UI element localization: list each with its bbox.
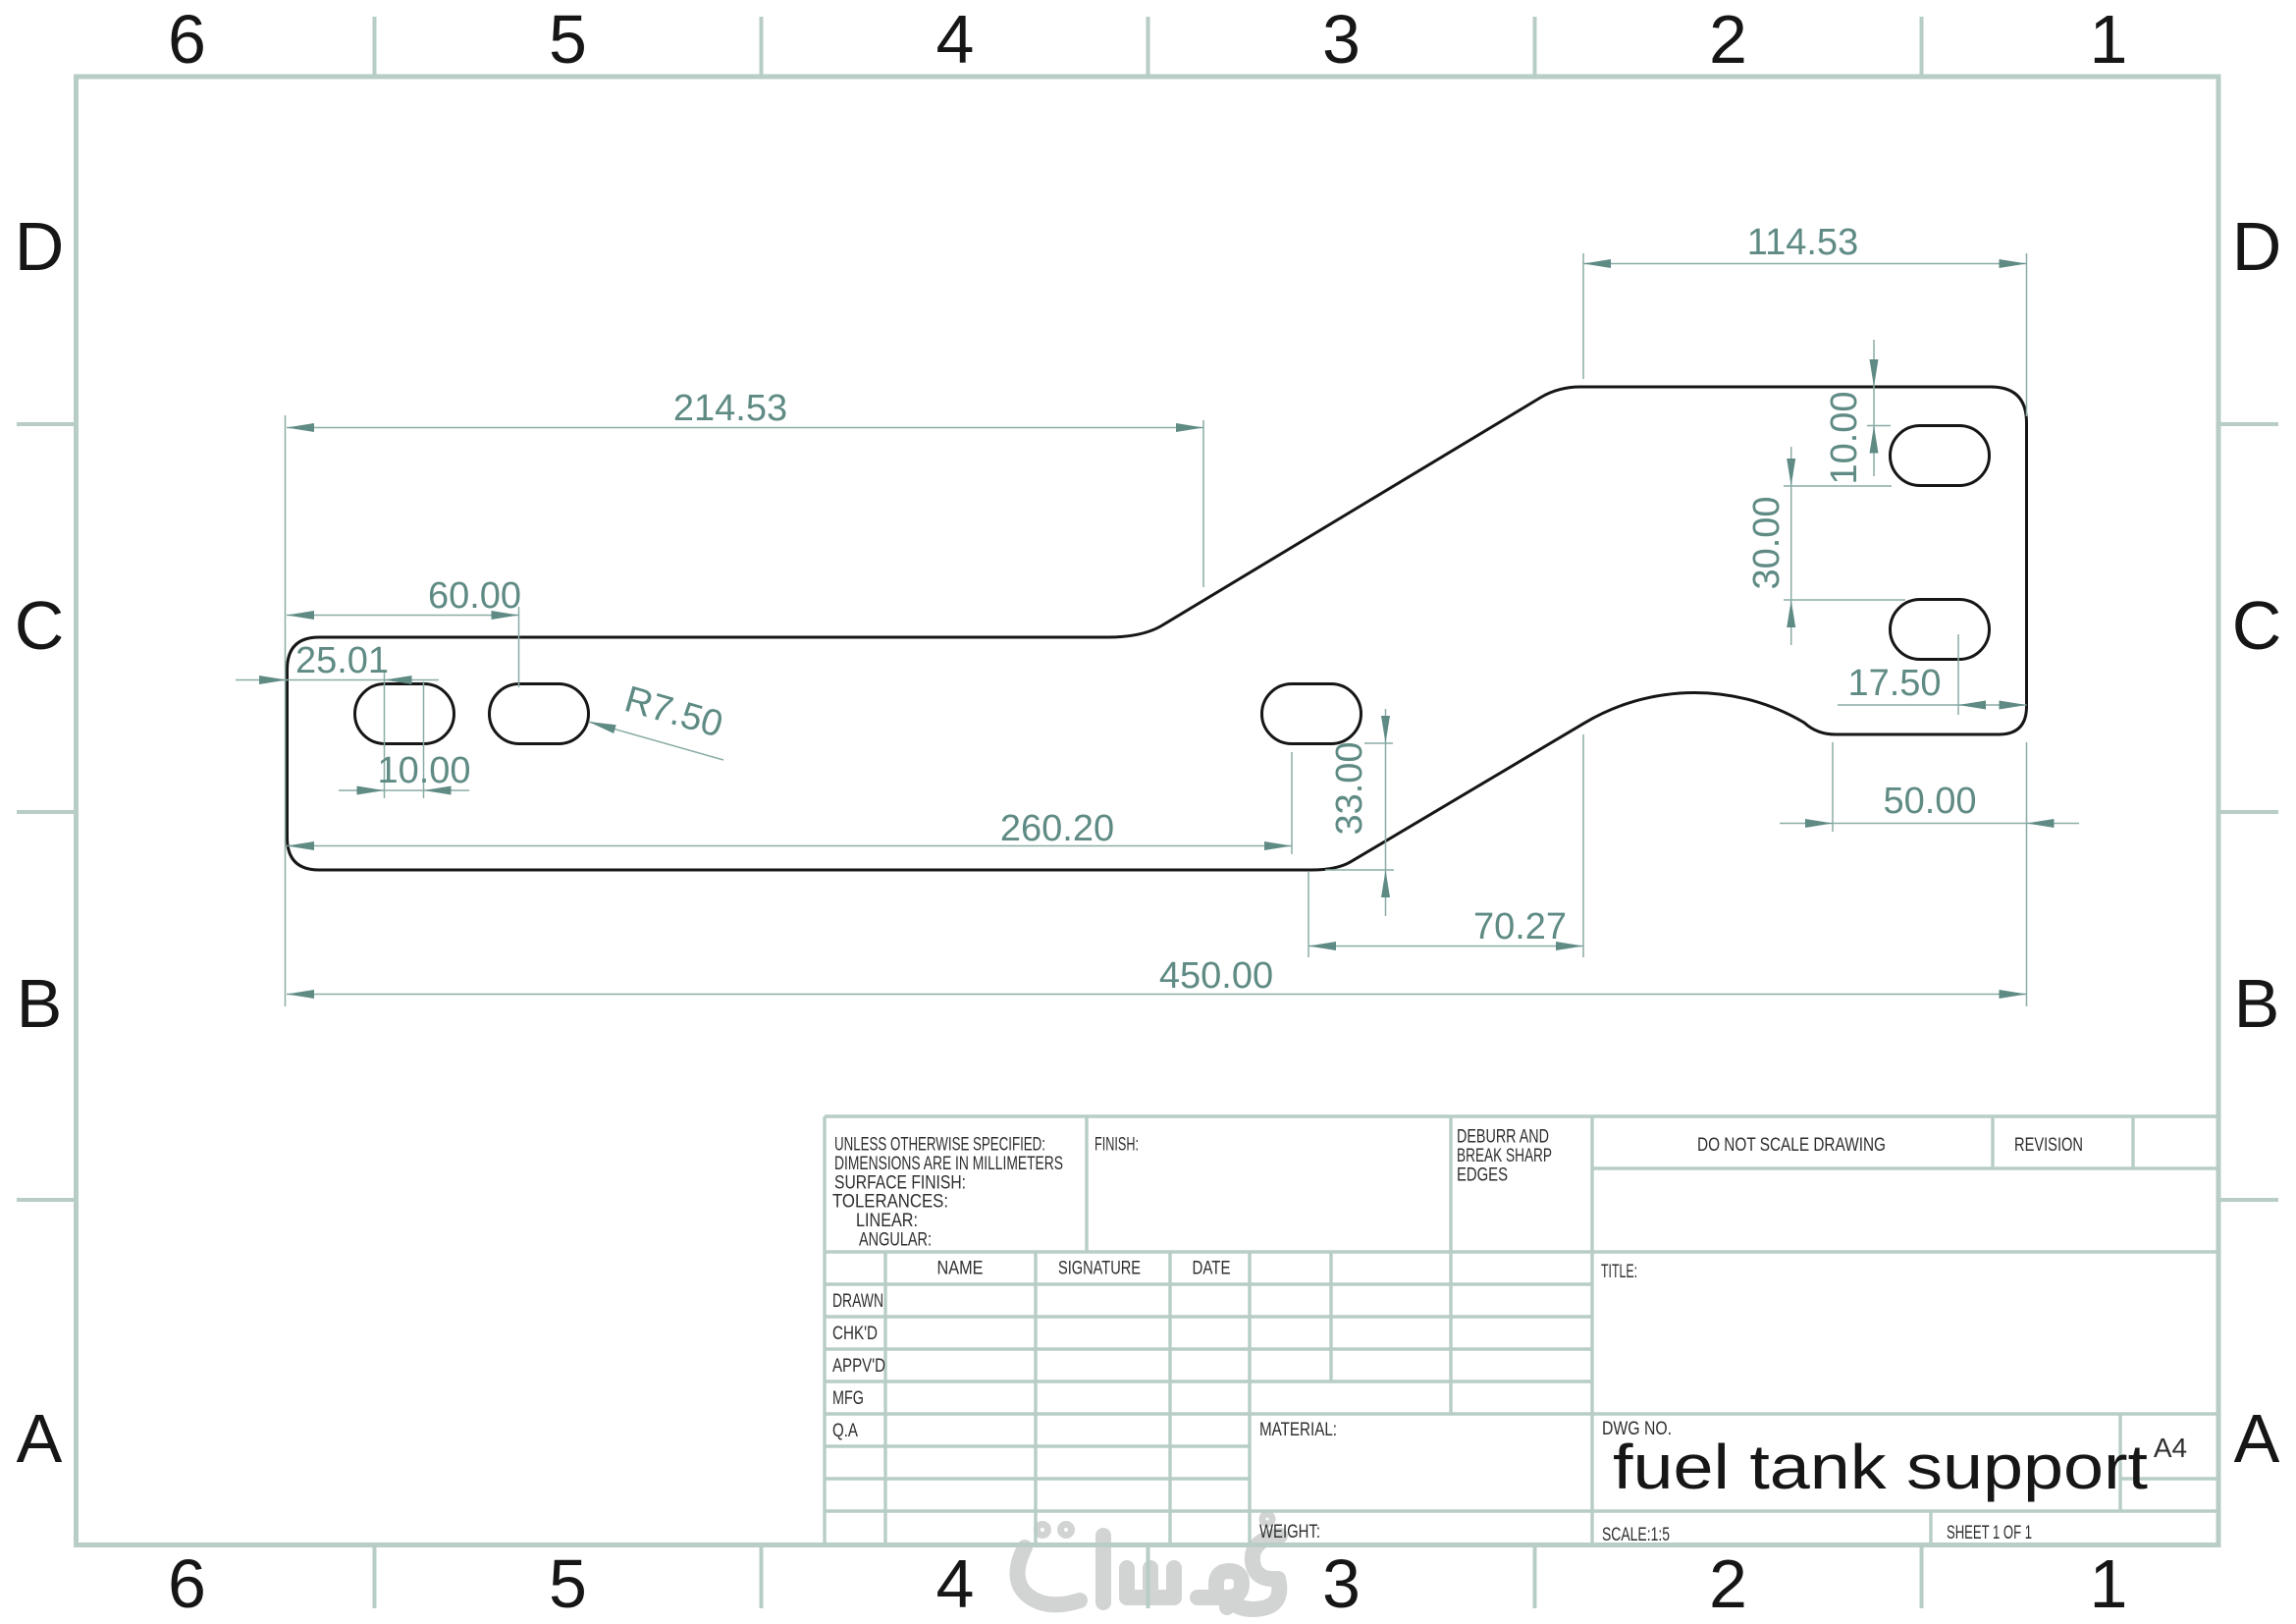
svg-text:CHK'D: CHK'D: [832, 1324, 878, 1344]
svg-text:C: C: [15, 587, 65, 664]
svg-text:MATERIAL:: MATERIAL:: [1259, 1420, 1337, 1440]
svg-text:6: 6: [168, 1545, 206, 1622]
svg-text:5: 5: [549, 1, 587, 78]
svg-text:260.20: 260.20: [1000, 808, 1114, 849]
svg-text:A: A: [17, 1400, 63, 1477]
svg-text:5: 5: [549, 1545, 587, 1622]
svg-text:25.01: 25.01: [295, 640, 389, 681]
svg-text:1: 1: [2090, 1, 2128, 78]
svg-text:17.50: 17.50: [1847, 663, 1941, 704]
svg-text:WEIGHT:: WEIGHT:: [1259, 1522, 1320, 1543]
svg-text:10.00: 10.00: [377, 750, 470, 791]
svg-text:DO NOT SCALE DRAWING: DO NOT SCALE DRAWING: [1697, 1135, 1886, 1156]
svg-text:NAME: NAME: [937, 1259, 984, 1279]
svg-text:214.53: 214.53: [673, 388, 787, 429]
svg-text:6: 6: [168, 1, 206, 78]
svg-text:SHEET 1 OF 1: SHEET 1 OF 1: [1947, 1523, 2032, 1543]
svg-text:ANGULAR:: ANGULAR:: [859, 1230, 932, 1251]
svg-text:SIGNATURE: SIGNATURE: [1058, 1259, 1141, 1279]
svg-text:3: 3: [1322, 1, 1361, 78]
svg-text:Q.A: Q.A: [832, 1421, 858, 1441]
svg-text:SCALE:1:5: SCALE:1:5: [1602, 1525, 1670, 1545]
svg-text:1: 1: [2090, 1545, 2128, 1622]
svg-text:C: C: [2232, 587, 2282, 664]
svg-text:DRAWN: DRAWN: [832, 1291, 883, 1312]
svg-text:30.00: 30.00: [1746, 496, 1788, 589]
svg-text:50.00: 50.00: [1883, 781, 1976, 822]
svg-text:TOLERANCES:: TOLERANCES:: [832, 1192, 948, 1213]
svg-text:60.00: 60.00: [428, 575, 521, 617]
svg-text:DEBURR AND: DEBURR AND: [1457, 1127, 1549, 1148]
svg-text:FINISH:: FINISH:: [1095, 1135, 1139, 1156]
svg-text:10.00: 10.00: [1824, 391, 1865, 484]
svg-text:EDGES: EDGES: [1457, 1164, 1508, 1185]
svg-text:fuel tank support: fuel tank support: [1613, 1432, 2148, 1502]
svg-text:A: A: [2234, 1400, 2280, 1477]
svg-text:APPV'D: APPV'D: [832, 1356, 885, 1377]
svg-text:4: 4: [936, 1545, 975, 1622]
svg-text:BREAK SHARP: BREAK SHARP: [1457, 1146, 1552, 1166]
svg-text:2: 2: [1709, 1, 1747, 78]
svg-text:33.00: 33.00: [1329, 741, 1370, 835]
svg-text:450.00: 450.00: [1159, 955, 1273, 997]
svg-text:A4: A4: [2154, 1433, 2187, 1463]
svg-text:D: D: [15, 208, 65, 285]
svg-text:TITLE:: TITLE:: [1601, 1262, 1637, 1282]
svg-text:LINEAR:: LINEAR:: [856, 1211, 918, 1231]
svg-text:B: B: [17, 965, 63, 1042]
svg-text:DATE: DATE: [1193, 1259, 1231, 1279]
svg-text:DIMENSIONS ARE IN MILLIMETERS: DIMENSIONS ARE IN MILLIMETERS: [834, 1154, 1063, 1174]
svg-text:D: D: [2232, 208, 2282, 285]
svg-text:114.53: 114.53: [1747, 222, 1858, 263]
svg-text:4: 4: [936, 1, 975, 78]
svg-text:70.27: 70.27: [1473, 906, 1567, 947]
svg-text:B: B: [2234, 965, 2280, 1042]
svg-text:2: 2: [1709, 1545, 1747, 1622]
svg-text:MFG: MFG: [832, 1388, 864, 1409]
svg-text:UNLESS OTHERWISE SPECIFIED:: UNLESS OTHERWISE SPECIFIED:: [834, 1135, 1045, 1156]
svg-text:SURFACE FINISH:: SURFACE FINISH:: [834, 1172, 966, 1193]
svg-text:REVISION: REVISION: [2014, 1135, 2083, 1156]
svg-text:3: 3: [1322, 1545, 1361, 1622]
